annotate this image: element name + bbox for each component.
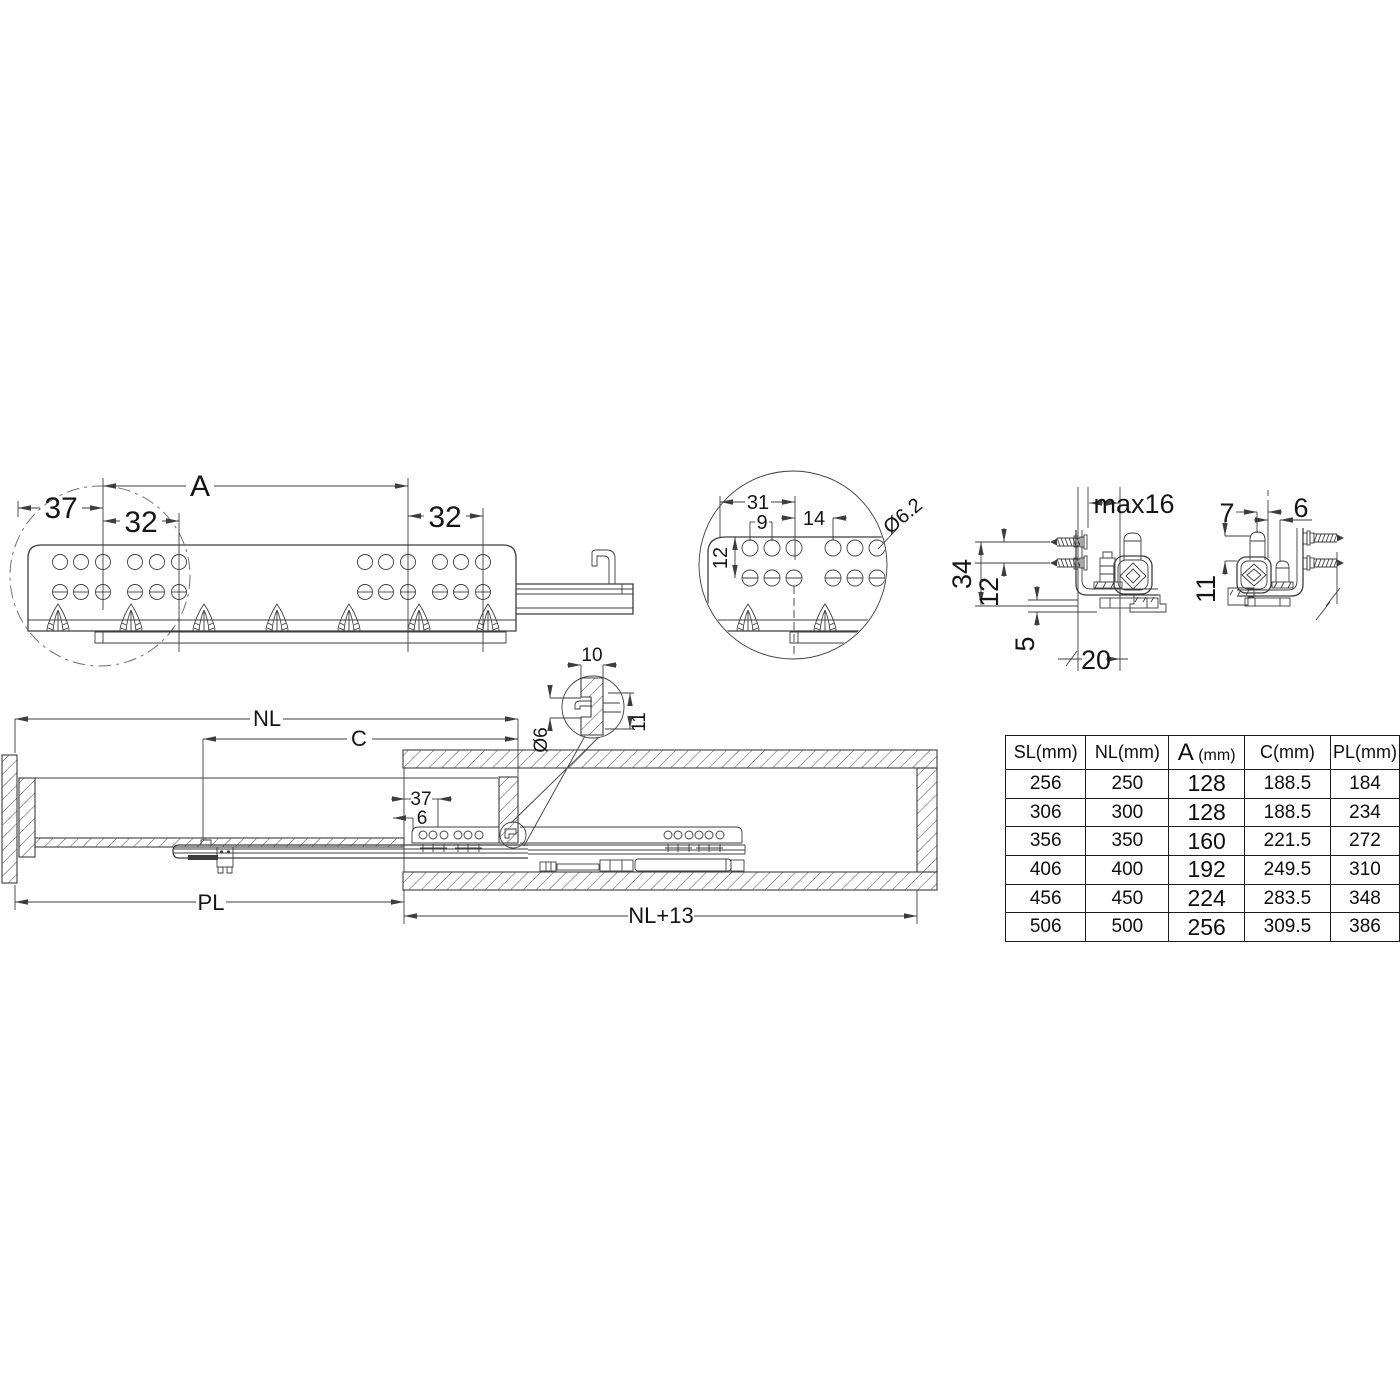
dim-PL-label: PL — [198, 890, 225, 915]
spec-cell: 386 — [1330, 913, 1399, 942]
spec-cell: 306 — [1006, 798, 1086, 827]
spec-row: 256250128188.5184 — [1006, 770, 1400, 799]
dim-12-section-label: 12 — [974, 577, 1004, 607]
spec-cell: 128 — [1169, 770, 1245, 799]
spec-cell: 160 — [1169, 827, 1245, 856]
dim-7: 7 — [1219, 498, 1282, 528]
dim-NL13-label: NL+13 — [628, 903, 693, 928]
panel-hole-section — [581, 678, 603, 735]
rear-bracket-mechanism — [1228, 528, 1344, 620]
screw-icon — [1307, 556, 1344, 570]
dim-C-label: C — [351, 726, 367, 751]
dim-12-detail-label: 12 — [710, 547, 732, 569]
screw-icon — [1307, 531, 1344, 545]
spec-col-header: C(mm) — [1244, 736, 1330, 770]
dim-6-install-label: 6 — [417, 808, 428, 829]
spec-col-header: PL(mm) — [1330, 736, 1399, 770]
dim-C: C — [203, 726, 518, 840]
dim-20-label: 20 — [1081, 645, 1111, 675]
dim-NL13: NL+13 — [404, 890, 917, 928]
spec-cell: 356 — [1006, 827, 1086, 856]
spec-cell: 350 — [1086, 827, 1169, 856]
dim-32-right-label: 32 — [428, 501, 461, 534]
technical-drawing-page: { "page": {"background": "#ffffff", "lin… — [0, 0, 1400, 1400]
cabinet-back-panel — [917, 768, 937, 872]
spec-cell: 310 — [1330, 856, 1399, 885]
damper-cylinder — [635, 859, 731, 871]
dim-37-label: 37 — [44, 492, 77, 525]
dim-dia6-label: Ø6 — [531, 727, 552, 752]
dim-31-label: 31 — [747, 492, 769, 514]
dim-20: 20 — [1058, 645, 1128, 675]
cabinet-rail-rear-segment — [520, 827, 742, 852]
spec-cell: 300 — [1086, 798, 1169, 827]
rear-hook — [592, 550, 615, 584]
dim-10-label: 10 — [581, 645, 602, 666]
spec-col-header: SL(mm) — [1006, 736, 1086, 770]
spec-col-header: NL(mm) — [1086, 736, 1169, 770]
screw-icon — [1050, 556, 1087, 570]
pull-out-rail — [173, 840, 528, 873]
spec-cell: 506 — [1006, 913, 1086, 942]
spec-table-header: SL(mm)NL(mm)A (mm)C(mm)PL(mm) — [1006, 736, 1400, 770]
spec-cell: 256 — [1169, 913, 1245, 942]
drawer-slide-side-view: A 37 32 32 — [10, 470, 633, 666]
dim-32-left: 32 — [103, 506, 179, 652]
spec-row: 406400192249.5310 — [1006, 856, 1400, 885]
dim-10: 10 — [567, 645, 617, 678]
inner-member-and-damper — [528, 845, 745, 871]
mounting-holes-round — [53, 555, 491, 570]
dim-dia6-2: Ø6.2 — [878, 494, 927, 549]
dim-11-section-label: 11 — [1191, 575, 1221, 603]
dim-5-label: 5 — [1010, 636, 1040, 651]
drawer-back-panel — [499, 777, 518, 843]
front-panel-section — [2, 755, 17, 883]
spec-cell: 221.5 — [1244, 827, 1330, 856]
mounting-holes-slotted — [53, 585, 491, 600]
front-panel-inner-block — [19, 778, 35, 857]
hook-detail-view: 10 Ø6 11 — [531, 645, 650, 753]
spec-cell: 249.5 — [1244, 856, 1330, 885]
dim-9-label: 9 — [756, 512, 767, 534]
spec-cell: 450 — [1086, 884, 1169, 913]
spec-cell: 400 — [1086, 856, 1169, 885]
dim-32-left-label: 32 — [124, 506, 157, 539]
anchor-spikes — [47, 604, 499, 631]
rear-hook-enlarged — [575, 701, 592, 709]
spec-cell: 192 — [1169, 856, 1245, 885]
dim-A: A — [103, 470, 408, 652]
drawing-canvas: A 37 32 32 — [0, 0, 1400, 1400]
spec-table-body: 256250128188.5184306300128188.5234356350… — [1006, 770, 1400, 942]
dim-NL-label: NL — [253, 706, 281, 731]
dim-12-detail: 12 — [710, 537, 744, 578]
dim-5: 5 — [1010, 586, 1097, 652]
dim-14: 14 — [781, 508, 847, 540]
dim-dia6-2-label: Ø6.2 — [879, 494, 926, 539]
dim-37-install-label: 37 — [410, 789, 431, 810]
dim-A-label: A — [190, 470, 210, 503]
spec-cell: 188.5 — [1244, 798, 1330, 827]
dim-34-label: 34 — [947, 559, 977, 589]
dim-7-label: 7 — [1219, 498, 1234, 528]
cross-section-rear-bracket: 7 6 11 — [1191, 490, 1344, 620]
dim-PL: PL — [15, 885, 404, 924]
dim-14-label: 14 — [803, 508, 825, 530]
spec-cell: 234 — [1330, 798, 1399, 827]
spec-row: 456450224283.5348 — [1006, 884, 1400, 913]
spec-cell: 348 — [1330, 884, 1399, 913]
spreader-bar — [188, 855, 218, 860]
spec-cell: 309.5 — [1244, 913, 1330, 942]
dim-6-section-label: 6 — [1293, 493, 1308, 523]
spec-cell: 188.5 — [1244, 770, 1330, 799]
release-clip — [217, 847, 233, 867]
spec-cell: 283.5 — [1244, 884, 1330, 913]
dim-max16: max16 — [1089, 489, 1175, 519]
spec-cell: 272 — [1330, 827, 1399, 856]
break-line — [1316, 588, 1340, 620]
dim-12-section: 12 — [974, 528, 1004, 607]
rear-extension-member — [516, 550, 633, 614]
spec-cell: 224 — [1169, 884, 1245, 913]
spec-row: 306300128188.5234 — [1006, 798, 1400, 827]
hole-pattern-detail-view: 31 9 14 12 Ø6.2 — [699, 471, 927, 660]
spec-cell: 250 — [1086, 770, 1169, 799]
cabinet-bottom-panel — [403, 872, 937, 890]
cross-section-front-bracket: max16 34 12 5 — [947, 487, 1175, 675]
spec-cell: 500 — [1086, 913, 1169, 942]
spec-row: 506500256309.5386 — [1006, 913, 1400, 942]
cabinet-top-panel — [403, 750, 937, 768]
dim-11-hook-label: 11 — [629, 712, 650, 732]
spec-col-header: A (mm) — [1169, 736, 1245, 770]
spec-row: 356350160221.5272 — [1006, 827, 1400, 856]
cabinet-rail-front-segment — [412, 827, 499, 852]
dim-max16-label: max16 — [1093, 489, 1174, 519]
dim-6-install: 6 — [393, 808, 427, 831]
screw-icon — [1050, 535, 1087, 549]
spec-cell: 184 — [1330, 770, 1399, 799]
spec-cell: 456 — [1006, 884, 1086, 913]
spec-cell: 256 — [1006, 770, 1086, 799]
spec-cell: 406 — [1006, 856, 1086, 885]
detail-callout-circle — [10, 486, 190, 666]
spec-cell: 128 — [1169, 798, 1245, 827]
dim-6-section: 6 — [1254, 493, 1312, 523]
installation-section-view: NL C PL NL+13 — [2, 706, 937, 928]
spec-table: SL(mm)NL(mm)A (mm)C(mm)PL(mm) 2562501281… — [1005, 735, 1400, 942]
dim-37: 37 — [18, 492, 103, 525]
dim-dia6: Ø6 — [531, 692, 581, 753]
